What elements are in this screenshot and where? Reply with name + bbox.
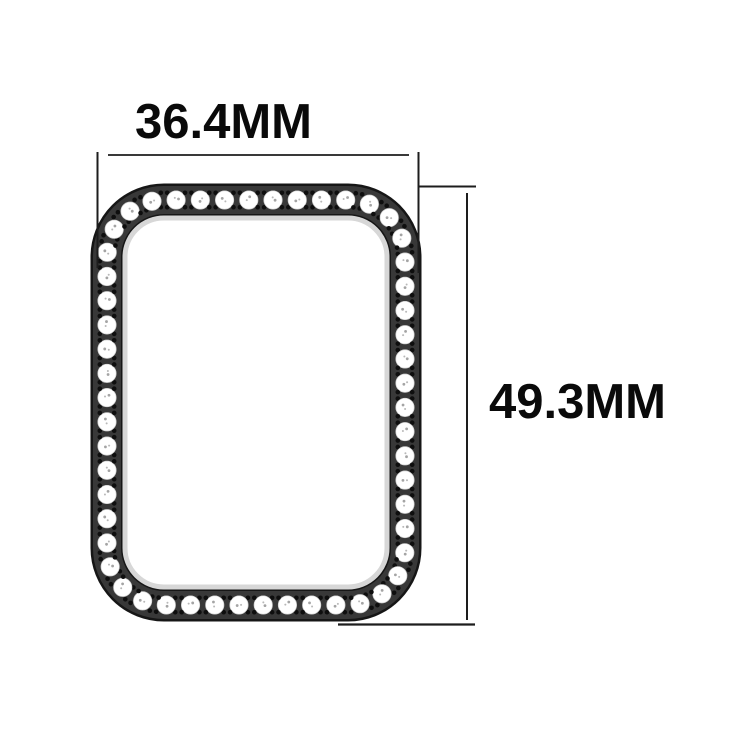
stud-dot [231, 205, 236, 210]
rhinestone [396, 398, 414, 416]
stud-dot [98, 289, 103, 294]
stud-dot [325, 596, 330, 601]
rhinestone [215, 191, 233, 209]
stone-facet-mark [199, 200, 202, 203]
rhinestone [288, 191, 306, 209]
stone-facet-mark [337, 603, 339, 605]
stud-dot [105, 576, 110, 581]
stone-facet-mark [143, 601, 145, 603]
stud-dot [395, 245, 400, 250]
frame-inner-highlight [125, 218, 387, 587]
stone-facet-mark [406, 381, 408, 383]
stone-facet-mark [406, 479, 408, 481]
stud-dot [349, 596, 354, 601]
stone-facet-mark [405, 427, 408, 430]
stud-dot [396, 269, 401, 274]
rhinestone [373, 585, 391, 603]
rhinestone [121, 202, 139, 220]
stone-facet-mark [108, 564, 110, 566]
stone-facet-mark [105, 276, 108, 279]
stone-facet-mark [103, 516, 106, 519]
rhinestone [396, 253, 414, 271]
stone-facet-mark [191, 602, 194, 605]
stud-dot [304, 191, 309, 196]
stud-dot [396, 535, 401, 540]
stud-dot [396, 366, 401, 371]
stone-facet-mark [139, 599, 142, 602]
stud-dot [207, 205, 212, 210]
stud-dot [231, 191, 236, 196]
stud-dot [138, 211, 143, 216]
stone-facet-mark [405, 550, 407, 552]
stone-facet-mark [406, 525, 409, 528]
rhinestone [98, 510, 116, 528]
stone-facet-mark [105, 298, 107, 300]
stud-dot [392, 590, 397, 595]
stud-dot [252, 596, 257, 601]
stone-facet-mark [236, 604, 239, 607]
stone-facet-mark [398, 576, 400, 578]
stud-dot [396, 414, 401, 419]
stone-facet-mark [108, 349, 110, 351]
rhinestone [396, 447, 414, 465]
stud-dot [123, 597, 128, 602]
rhinestone [396, 519, 414, 537]
stud-dot [369, 590, 374, 595]
stone-facet-mark [264, 604, 267, 607]
rhinestone [278, 596, 296, 614]
stone-facet-mark [401, 308, 404, 311]
stone-facet-mark [105, 543, 108, 546]
rhinestone [396, 277, 414, 295]
rhinestone [206, 596, 224, 614]
stone-facet-mark [107, 370, 109, 372]
stone-facet-mark [298, 198, 300, 200]
stone-facet-mark [406, 357, 409, 360]
stud-dot [112, 265, 117, 270]
stud-dot [255, 191, 260, 196]
stud-dot [98, 532, 103, 537]
stud-dot [410, 293, 415, 298]
stud-dot [300, 610, 305, 615]
stone-facet-mark [246, 199, 248, 201]
rhinestone [98, 413, 116, 431]
rhinestone [98, 316, 116, 334]
stone-facet-mark [318, 196, 321, 199]
stud-dot [410, 535, 415, 540]
stud-dot [112, 532, 117, 537]
stone-facet-mark [121, 583, 124, 586]
stone-facet-mark [149, 201, 152, 204]
stud-dot [304, 205, 309, 210]
stone-facet-mark [104, 445, 107, 448]
stone-facet-mark [404, 330, 407, 333]
rhinestone [105, 220, 123, 238]
stud-dot [112, 411, 117, 416]
stone-facet-mark [262, 601, 264, 603]
stone-facet-mark [221, 197, 224, 200]
stud-dot [228, 610, 233, 615]
stone-facet-mark [402, 334, 404, 336]
stud-dot [402, 224, 407, 229]
stud-dot [375, 603, 380, 608]
stud-dot [122, 224, 127, 229]
stone-facet-mark [103, 348, 106, 351]
stone-facet-mark [120, 587, 122, 589]
stone-facet-mark [107, 490, 110, 493]
stone-facet-mark [400, 233, 403, 236]
stone-facet-mark [404, 553, 407, 556]
stud-dot [113, 243, 118, 248]
stone-facet-mark [111, 565, 114, 568]
stud-dot [369, 606, 374, 611]
stud-dot [112, 508, 117, 513]
rhinestone [101, 558, 119, 576]
stone-facet-mark [224, 200, 226, 202]
stone-facet-mark [405, 455, 408, 458]
stone-facet-mark [358, 600, 360, 602]
stud-dot [300, 596, 305, 601]
stone-facet-mark [177, 198, 180, 201]
stud-dot [207, 191, 212, 196]
width-dimension-label: 36.4MM [135, 96, 312, 150]
frame-outer-outline [107, 200, 405, 605]
stone-facet-mark [390, 217, 392, 219]
stud-dot [349, 610, 354, 615]
stud-dot [396, 341, 401, 346]
stud-dot [406, 567, 411, 572]
stone-facet-mark [248, 195, 251, 198]
frame-band [107, 200, 405, 605]
stud-dot [109, 582, 114, 587]
stud-dot [280, 205, 285, 210]
stud-dot [396, 586, 401, 591]
stone-facet-mark [369, 201, 371, 203]
stud-dot [112, 362, 117, 367]
rhinestone [98, 388, 116, 406]
rhinestone [396, 374, 414, 392]
stud-dot [98, 386, 103, 391]
stone-facet-mark [212, 601, 215, 604]
stud-dot [98, 459, 103, 464]
stone-facet-mark [108, 469, 111, 472]
stone-facet-mark [400, 238, 402, 240]
stone-facet-mark [405, 311, 407, 313]
stone-facet-mark [104, 418, 107, 421]
stone-facet-mark [402, 383, 405, 386]
stone-facet-mark [402, 430, 404, 432]
rhinestone [360, 195, 378, 213]
stud-dot [98, 435, 103, 440]
stone-facet-mark [107, 253, 109, 255]
stud-dot [204, 610, 209, 615]
stud-dot [325, 610, 330, 615]
stud-dot [255, 205, 260, 210]
stud-dot [138, 195, 143, 200]
stud-dot [98, 338, 103, 343]
rhinestone [351, 595, 369, 613]
stone-facet-mark [105, 325, 107, 327]
stone-facet-mark [166, 605, 169, 608]
stud-dot [328, 205, 333, 210]
stud-dot [204, 596, 209, 601]
stud-dot [156, 595, 161, 600]
stone-facet-mark [404, 286, 407, 289]
stud-dot [98, 411, 103, 416]
stud-dot [98, 314, 103, 319]
stone-facet-mark [294, 200, 297, 203]
rhinestone [98, 340, 116, 358]
stone-facet-mark [105, 320, 108, 323]
stud-dot [384, 203, 389, 208]
stud-dot [98, 362, 103, 367]
stud-dot [98, 550, 103, 555]
rhinestone [396, 471, 414, 489]
stud-dot [328, 191, 333, 196]
rhinestone [396, 422, 414, 440]
stud-dot [410, 438, 415, 443]
stone-facet-mark [379, 593, 381, 595]
stone-facet-mark [406, 283, 408, 285]
stone-facet-mark [361, 602, 364, 605]
stud-dot [111, 215, 116, 220]
stud-dot [399, 218, 404, 223]
stone-facet-mark [104, 395, 106, 397]
stone-facet-mark [334, 605, 337, 608]
stone-facet-mark [274, 199, 277, 202]
stud-dot [179, 610, 184, 615]
rhinestone [327, 596, 345, 614]
stone-facet-mark [166, 602, 168, 604]
stone-facet-mark [272, 196, 274, 198]
stone-facet-mark [320, 201, 322, 203]
stone-facet-mark [201, 197, 203, 199]
rhinestone [98, 461, 116, 479]
stud-dot [148, 608, 153, 613]
rhinestone [98, 267, 116, 285]
rhinestone [389, 567, 407, 585]
stud-dot [379, 200, 384, 205]
stud-dot [351, 205, 356, 210]
rhinestone [254, 596, 272, 614]
stud-dot [112, 289, 117, 294]
stone-facet-mark [284, 604, 286, 606]
stud-dot [396, 511, 401, 516]
stud-dot [408, 561, 413, 566]
stud-dot [159, 191, 164, 196]
rhinestone [98, 485, 116, 503]
stud-dot [112, 338, 117, 343]
stone-facet-mark [343, 198, 345, 200]
stone-facet-mark [104, 493, 106, 495]
stud-dot [154, 610, 159, 615]
stone-facet-mark [131, 210, 134, 213]
stone-facet-mark [240, 604, 242, 606]
stud-dot [410, 269, 415, 274]
stud-dot [128, 601, 133, 606]
stud-dot [252, 610, 257, 615]
stud-dot [396, 487, 401, 492]
stone-facet-mark [213, 605, 215, 607]
stone-facet-mark [402, 404, 405, 407]
stud-dot [360, 192, 365, 197]
stone-facet-mark [404, 452, 406, 454]
stud-dot [132, 198, 137, 203]
rhinestone [396, 301, 414, 319]
rhinestone-layer [98, 191, 415, 615]
stone-facet-mark [108, 540, 110, 542]
stud-dot [101, 233, 106, 238]
rhinestone [98, 437, 116, 455]
stud-dot [99, 239, 104, 244]
stone-facet-mark [386, 216, 389, 219]
rhinestone [133, 592, 151, 610]
stud-dot [396, 293, 401, 298]
stud-dot [410, 250, 415, 255]
rhinestone [240, 191, 258, 209]
rhinestone [396, 350, 414, 368]
stone-facet-mark [308, 602, 311, 605]
stud-dot [387, 226, 392, 231]
rhinestone [98, 534, 116, 552]
stud-dot [183, 205, 188, 210]
stud-dot [396, 390, 401, 395]
stone-facet-mark [381, 589, 384, 592]
stud-dot [371, 212, 376, 217]
stone-facet-mark [108, 298, 111, 301]
rhinestone [312, 191, 330, 209]
stone-facet-mark [406, 259, 409, 262]
stone-facet-mark [153, 200, 155, 202]
rhinestone [143, 192, 161, 210]
stone-facet-mark [402, 526, 404, 528]
rhinestone [264, 191, 282, 209]
stone-facet-mark [369, 204, 372, 207]
rhinestone [98, 364, 116, 382]
rhinestone [380, 208, 398, 226]
stud-dot [385, 576, 390, 581]
stone-facet-mark [403, 500, 406, 503]
stud-dot [98, 508, 103, 513]
stud-dot [354, 191, 359, 196]
stud-dot [112, 459, 117, 464]
stone-facet-mark [129, 208, 131, 210]
stud-dot [410, 366, 415, 371]
rhinestone [181, 596, 199, 614]
stud-dot [396, 462, 401, 467]
stone-facet-mark [108, 445, 110, 447]
stud-dot [410, 390, 415, 395]
stone-facet-mark [106, 422, 108, 424]
rhinestone [114, 578, 132, 596]
stone-facet-mark [287, 601, 290, 604]
stud-dot [136, 589, 141, 594]
stud-dot [409, 244, 414, 249]
stone-facet-mark [107, 519, 109, 521]
stud-dot [179, 596, 184, 601]
stud-dot [121, 574, 126, 579]
stud-dot [410, 341, 415, 346]
stone-facet-mark [404, 408, 406, 410]
rhinestone [230, 596, 248, 614]
stud-dot [112, 386, 117, 391]
stud-dot [112, 483, 117, 488]
stud-dot [410, 317, 415, 322]
stud-dot [394, 557, 399, 562]
stud-dot [396, 438, 401, 443]
rhinestone [396, 326, 414, 344]
stone-facet-mark [346, 196, 349, 199]
rhinestone [396, 495, 414, 513]
rhinestone [98, 292, 116, 310]
stud-dot [112, 314, 117, 319]
rhinestone [393, 229, 411, 247]
stud-dot [116, 210, 121, 215]
stud-dot [410, 462, 415, 467]
stud-dot [113, 555, 118, 560]
stone-facet-mark [403, 355, 405, 357]
stone-facet-mark [114, 225, 117, 228]
stud-dot [396, 317, 401, 322]
stone-facet-mark [174, 197, 176, 199]
stud-dot [276, 610, 281, 615]
stud-dot [183, 191, 188, 196]
stone-facet-mark [103, 249, 106, 252]
stud-dot [410, 414, 415, 419]
stone-facet-mark [402, 479, 405, 482]
stud-dot [280, 191, 285, 196]
stone-facet-mark [107, 373, 110, 376]
stone-facet-mark [188, 603, 190, 605]
stone-facet-mark [108, 274, 110, 276]
stone-facet-mark [111, 229, 113, 231]
stone-facet-mark [403, 505, 405, 507]
rhinestone [302, 596, 320, 614]
stud-dot [228, 596, 233, 601]
stud-dot [410, 511, 415, 516]
watch-case-frame [98, 191, 415, 615]
stud-dot [98, 483, 103, 488]
stud-dot [112, 435, 117, 440]
stone-facet-mark [106, 467, 108, 469]
stud-dot [410, 487, 415, 492]
rhinestone [167, 191, 185, 209]
rhinestone [191, 191, 209, 209]
stone-facet-mark [311, 606, 313, 608]
stone-facet-mark [402, 259, 404, 261]
stud-dot [98, 557, 103, 562]
stone-facet-mark [394, 573, 397, 576]
product-dimension-image: 36.4MM 49.3MM [0, 0, 750, 750]
height-dimension-label: 49.3MM [489, 376, 666, 430]
stud-dot [276, 596, 281, 601]
stone-facet-mark [108, 394, 111, 397]
